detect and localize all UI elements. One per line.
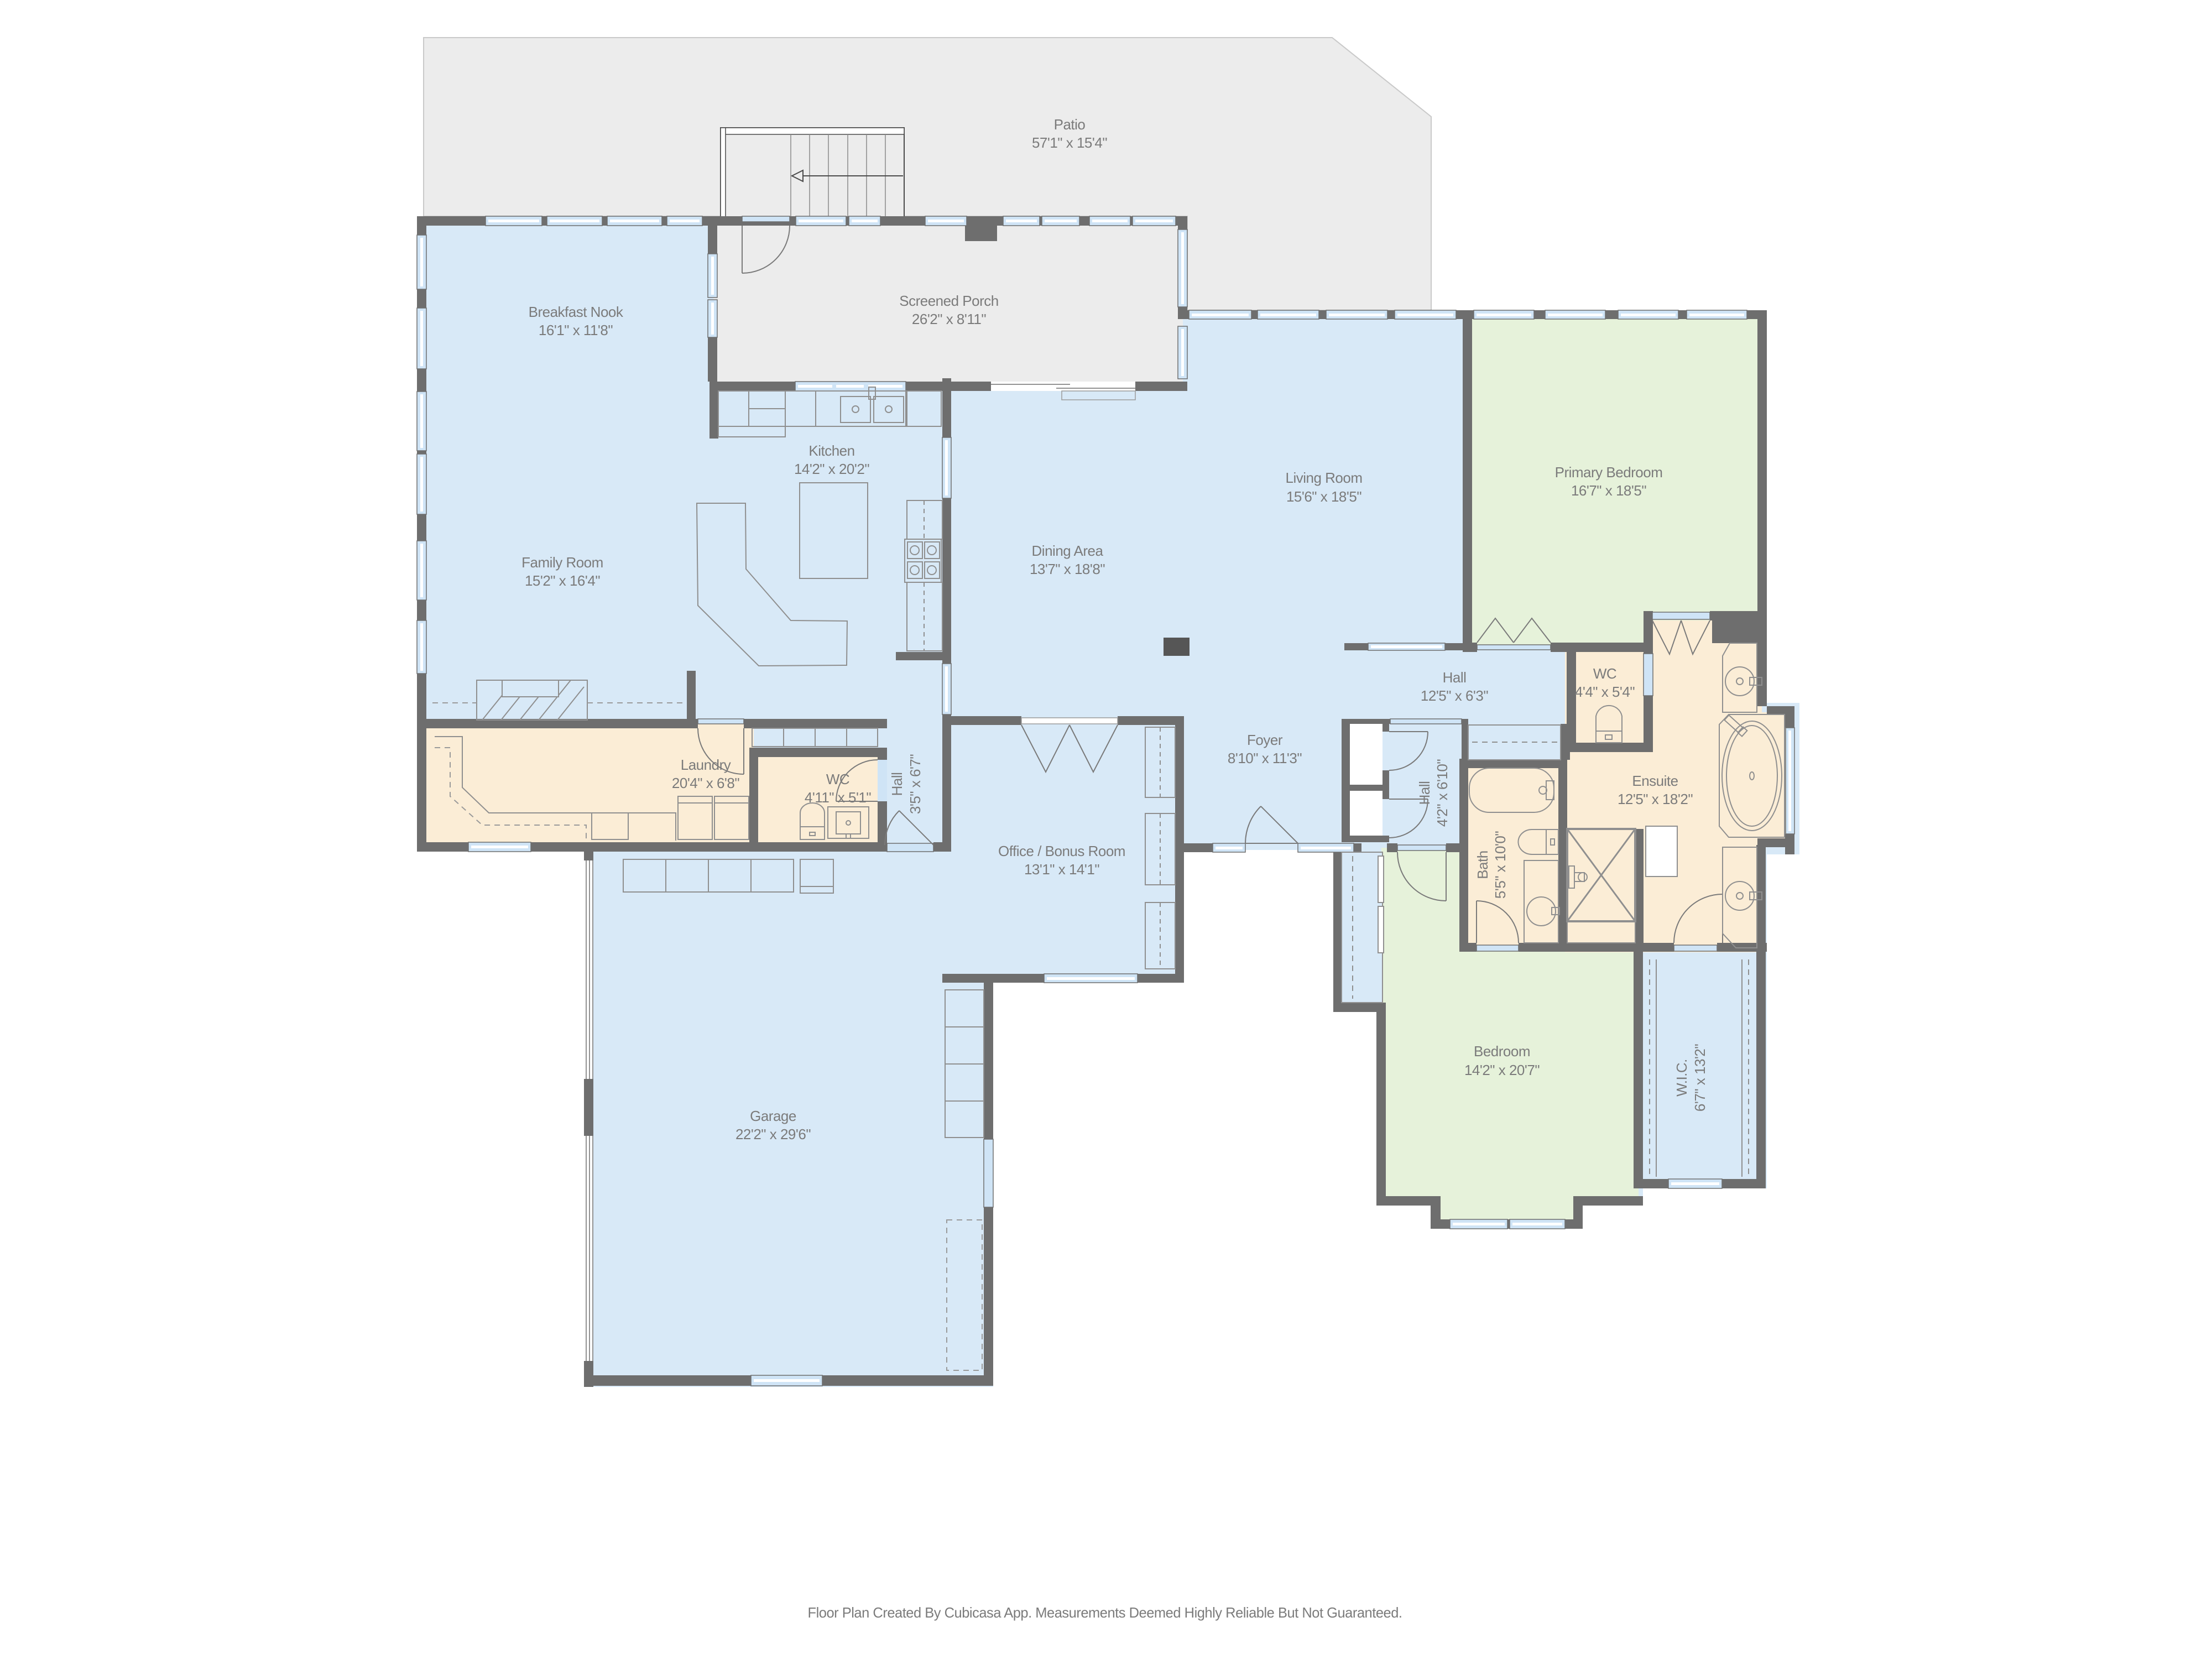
svg-text:Family Room: Family Room	[521, 554, 603, 571]
svg-text:Laundry: Laundry	[681, 757, 731, 773]
svg-text:13'1" x 14'1": 13'1" x 14'1"	[1024, 861, 1099, 878]
svg-text:Bedroom: Bedroom	[1474, 1043, 1530, 1060]
svg-text:57'1" x 15'4": 57'1" x 15'4"	[1032, 134, 1107, 151]
svg-text:Screened Porch: Screened Porch	[899, 293, 998, 309]
svg-text:WC: WC	[1593, 665, 1616, 682]
svg-text:Kitchen: Kitchen	[808, 442, 854, 459]
svg-text:4'11" x 5'1": 4'11" x 5'1"	[805, 789, 871, 806]
svg-text:4'4" x 5'4": 4'4" x 5'4"	[1575, 684, 1635, 700]
svg-text:WC: WC	[826, 771, 849, 787]
svg-text:Foyer: Foyer	[1247, 732, 1283, 748]
svg-text:Floor Plan Created By Cubicasa: Floor Plan Created By Cubicasa App. Meas…	[808, 1604, 1402, 1621]
svg-text:16'7" x 18'5": 16'7" x 18'5"	[1571, 482, 1646, 499]
svg-text:Office / Bonus Room: Office / Bonus Room	[998, 843, 1125, 859]
svg-text:Dining Area: Dining Area	[1032, 542, 1104, 559]
svg-text:6'7" x 13'2": 6'7" x 13'2"	[1692, 1044, 1708, 1112]
svg-text:8'10" x 11'3": 8'10" x 11'3"	[1228, 750, 1302, 766]
svg-text:Hall: Hall	[1443, 669, 1467, 686]
svg-text:12'5" x 6'3": 12'5" x 6'3"	[1421, 687, 1488, 704]
svg-text:5'5" x 10'0": 5'5" x 10'0"	[1492, 831, 1509, 899]
svg-text:15'6" x 18'5": 15'6" x 18'5"	[1286, 488, 1361, 505]
svg-text:14'2" x 20'2": 14'2" x 20'2"	[794, 461, 869, 477]
svg-text:16'1" x 11'8": 16'1" x 11'8"	[539, 322, 613, 338]
svg-text:15'2" x 16'4": 15'2" x 16'4"	[525, 572, 600, 589]
svg-text:Living Room: Living Room	[1285, 469, 1362, 486]
svg-text:Breakfast Nook: Breakfast Nook	[529, 304, 624, 320]
svg-text:3'5" x 6'7": 3'5" x 6'7"	[907, 754, 924, 814]
svg-text:12'5" x 18'2": 12'5" x 18'2"	[1618, 791, 1693, 807]
svg-text:Primary Bedroom: Primary Bedroom	[1555, 464, 1663, 481]
svg-text:Hall: Hall	[889, 773, 905, 796]
svg-text:4'2" x 6'10": 4'2" x 6'10"	[1434, 759, 1451, 827]
svg-text:13'7" x 18'8": 13'7" x 18'8"	[1030, 561, 1105, 577]
svg-text:Hall: Hall	[1416, 781, 1433, 805]
svg-text:14'2" x 20'7": 14'2" x 20'7"	[1464, 1062, 1540, 1078]
svg-text:22'2" x 29'6": 22'2" x 29'6"	[735, 1126, 811, 1142]
svg-text:26'2" x 8'11": 26'2" x 8'11"	[912, 311, 986, 327]
svg-text:20'4" x 6'8": 20'4" x 6'8"	[672, 775, 739, 791]
svg-text:W.I.C.: W.I.C.	[1673, 1059, 1690, 1097]
svg-text:Patio: Patio	[1054, 116, 1086, 133]
svg-text:Garage: Garage	[750, 1108, 796, 1124]
svg-text:Ensuite: Ensuite	[1632, 773, 1678, 789]
svg-text:Bath: Bath	[1474, 851, 1491, 879]
